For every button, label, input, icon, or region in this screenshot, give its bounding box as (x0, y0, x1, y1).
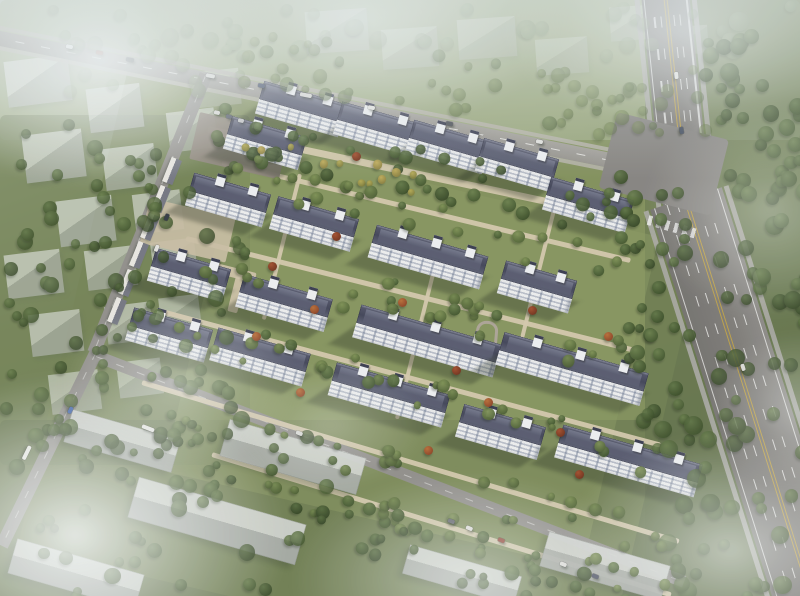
atmosphere-tint (0, 0, 800, 596)
aerial-render-canvas (0, 0, 800, 596)
